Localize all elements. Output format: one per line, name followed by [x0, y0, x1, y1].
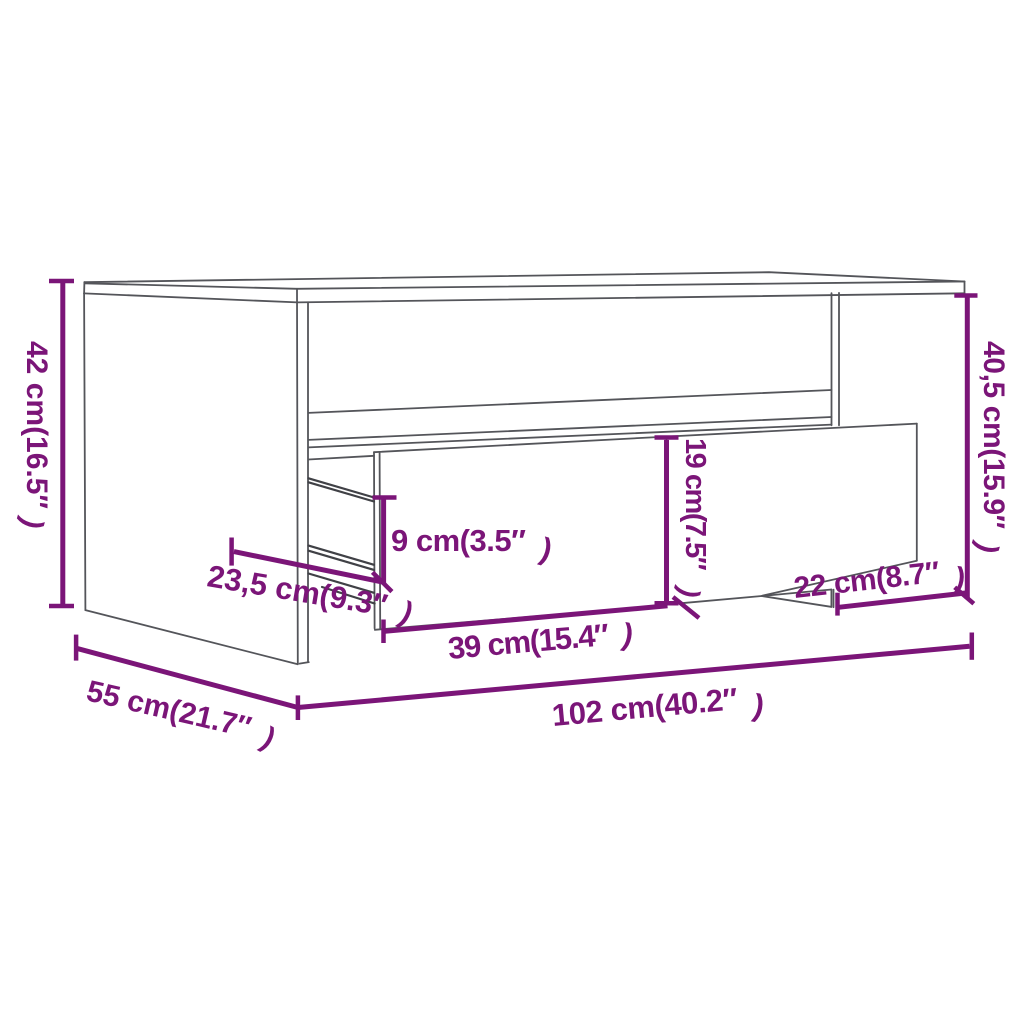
- svg-text:9 cm(3.5″ ): 9 cm(3.5″ ): [391, 523, 556, 567]
- svg-text:19 cm(7.5″ ): 19 cm(7.5″ ): [672, 438, 711, 601]
- svg-text:42 cm(16.5″ ): 42 cm(16.5″ ): [15, 341, 53, 533]
- svg-text:55 cm(21.7″ ): 55 cm(21.7″ ): [82, 675, 283, 758]
- svg-text:40,5 cm(15.9″ ): 40,5 cm(15.9″ ): [970, 341, 1010, 557]
- svg-text:102 cm(40.2″ ): 102 cm(40.2″ ): [550, 679, 769, 743]
